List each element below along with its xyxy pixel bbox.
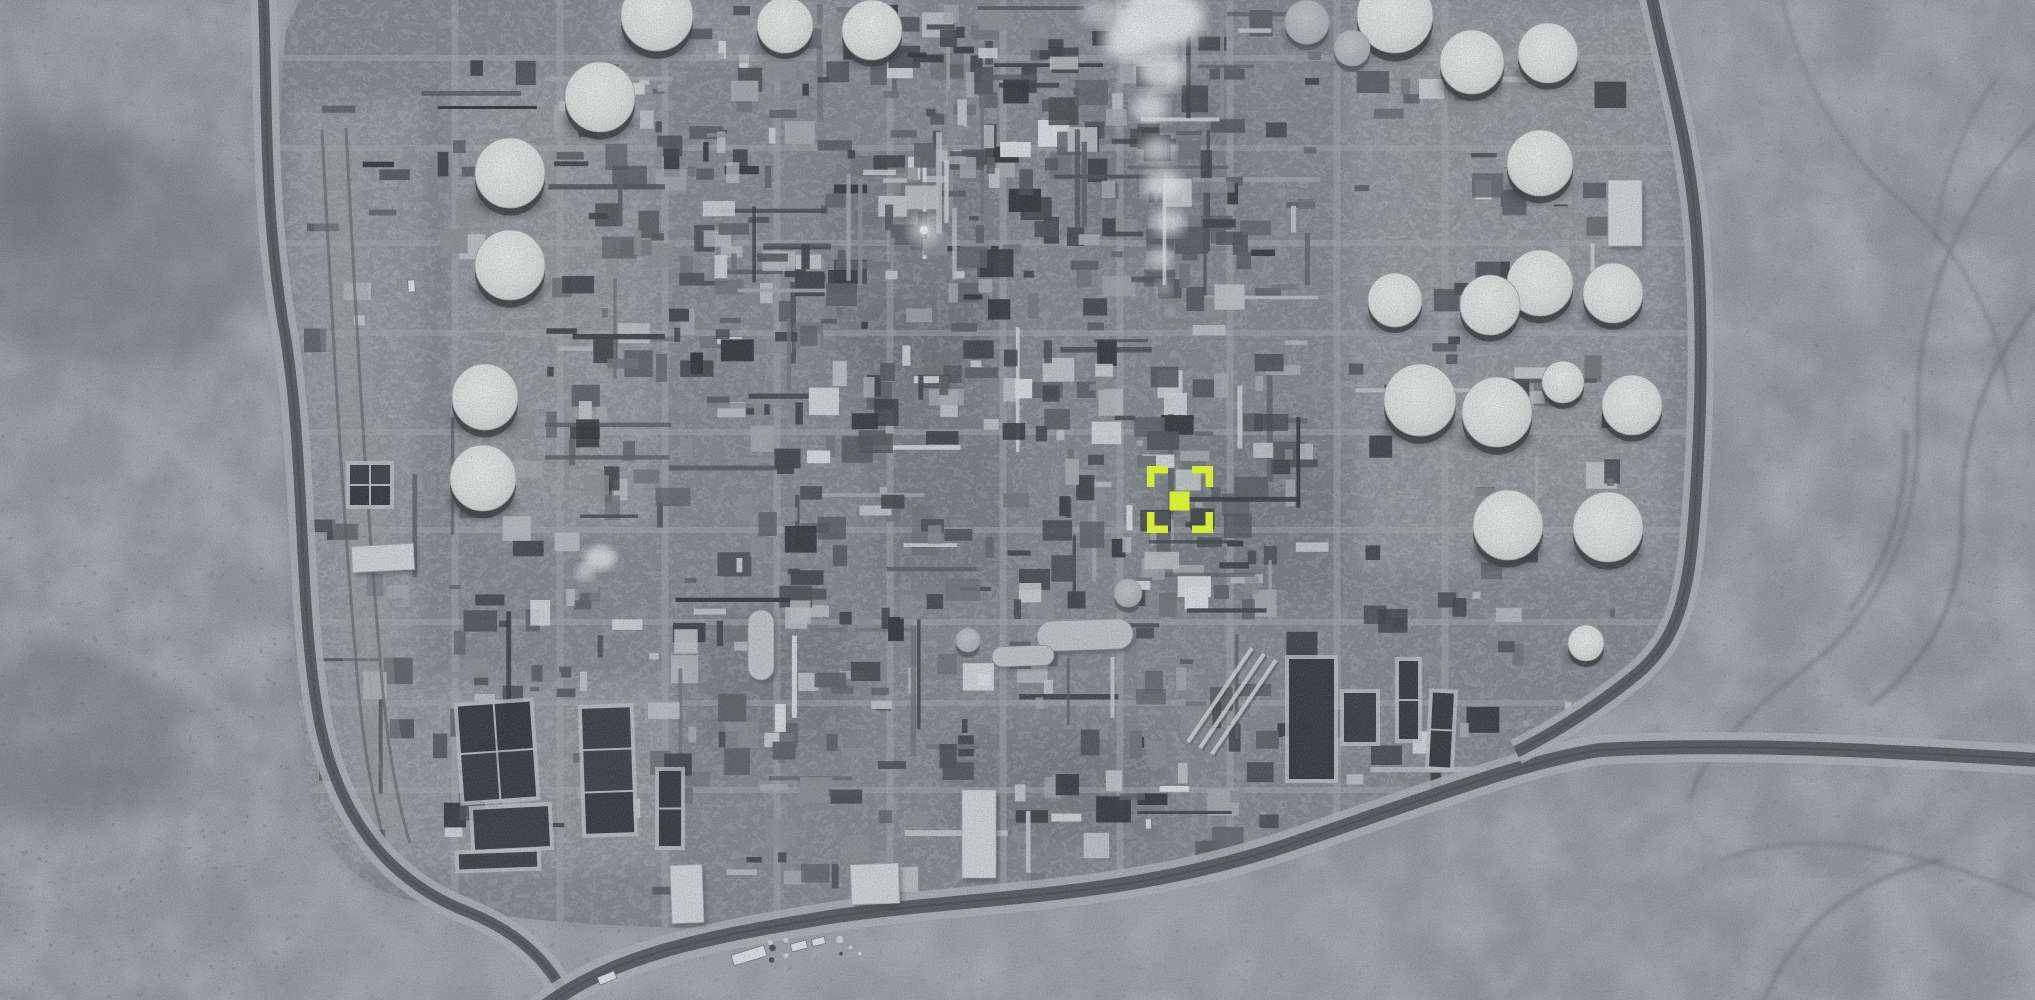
reticle-center-square (1170, 492, 1190, 511)
reticle-corner-bracket (1147, 512, 1155, 533)
photo-grain-overlay (0, 0, 2035, 1000)
satellite-image-viewport (0, 0, 2035, 1000)
satellite-photo (0, 0, 2035, 1000)
reticle-corner-bracket (1206, 466, 1214, 487)
reticle-corner-bracket (1147, 466, 1155, 487)
reticle-corner-bracket (1206, 512, 1214, 533)
